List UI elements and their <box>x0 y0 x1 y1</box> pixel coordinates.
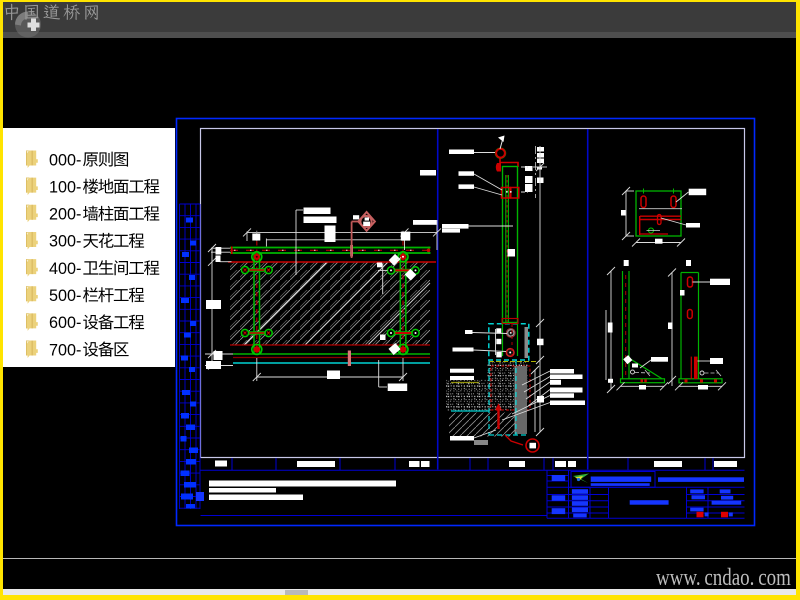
svg-text:300-: 300- <box>49 232 81 250</box>
svg-text:600-: 600- <box>49 314 81 332</box>
svg-text:700-: 700- <box>49 341 81 359</box>
svg-text:400-: 400- <box>49 259 81 277</box>
svg-text:500-: 500- <box>49 287 81 305</box>
svg-text:100-: 100- <box>49 178 81 196</box>
svg-text:000-: 000- <box>49 151 81 169</box>
svg-text:200-: 200- <box>49 205 81 223</box>
